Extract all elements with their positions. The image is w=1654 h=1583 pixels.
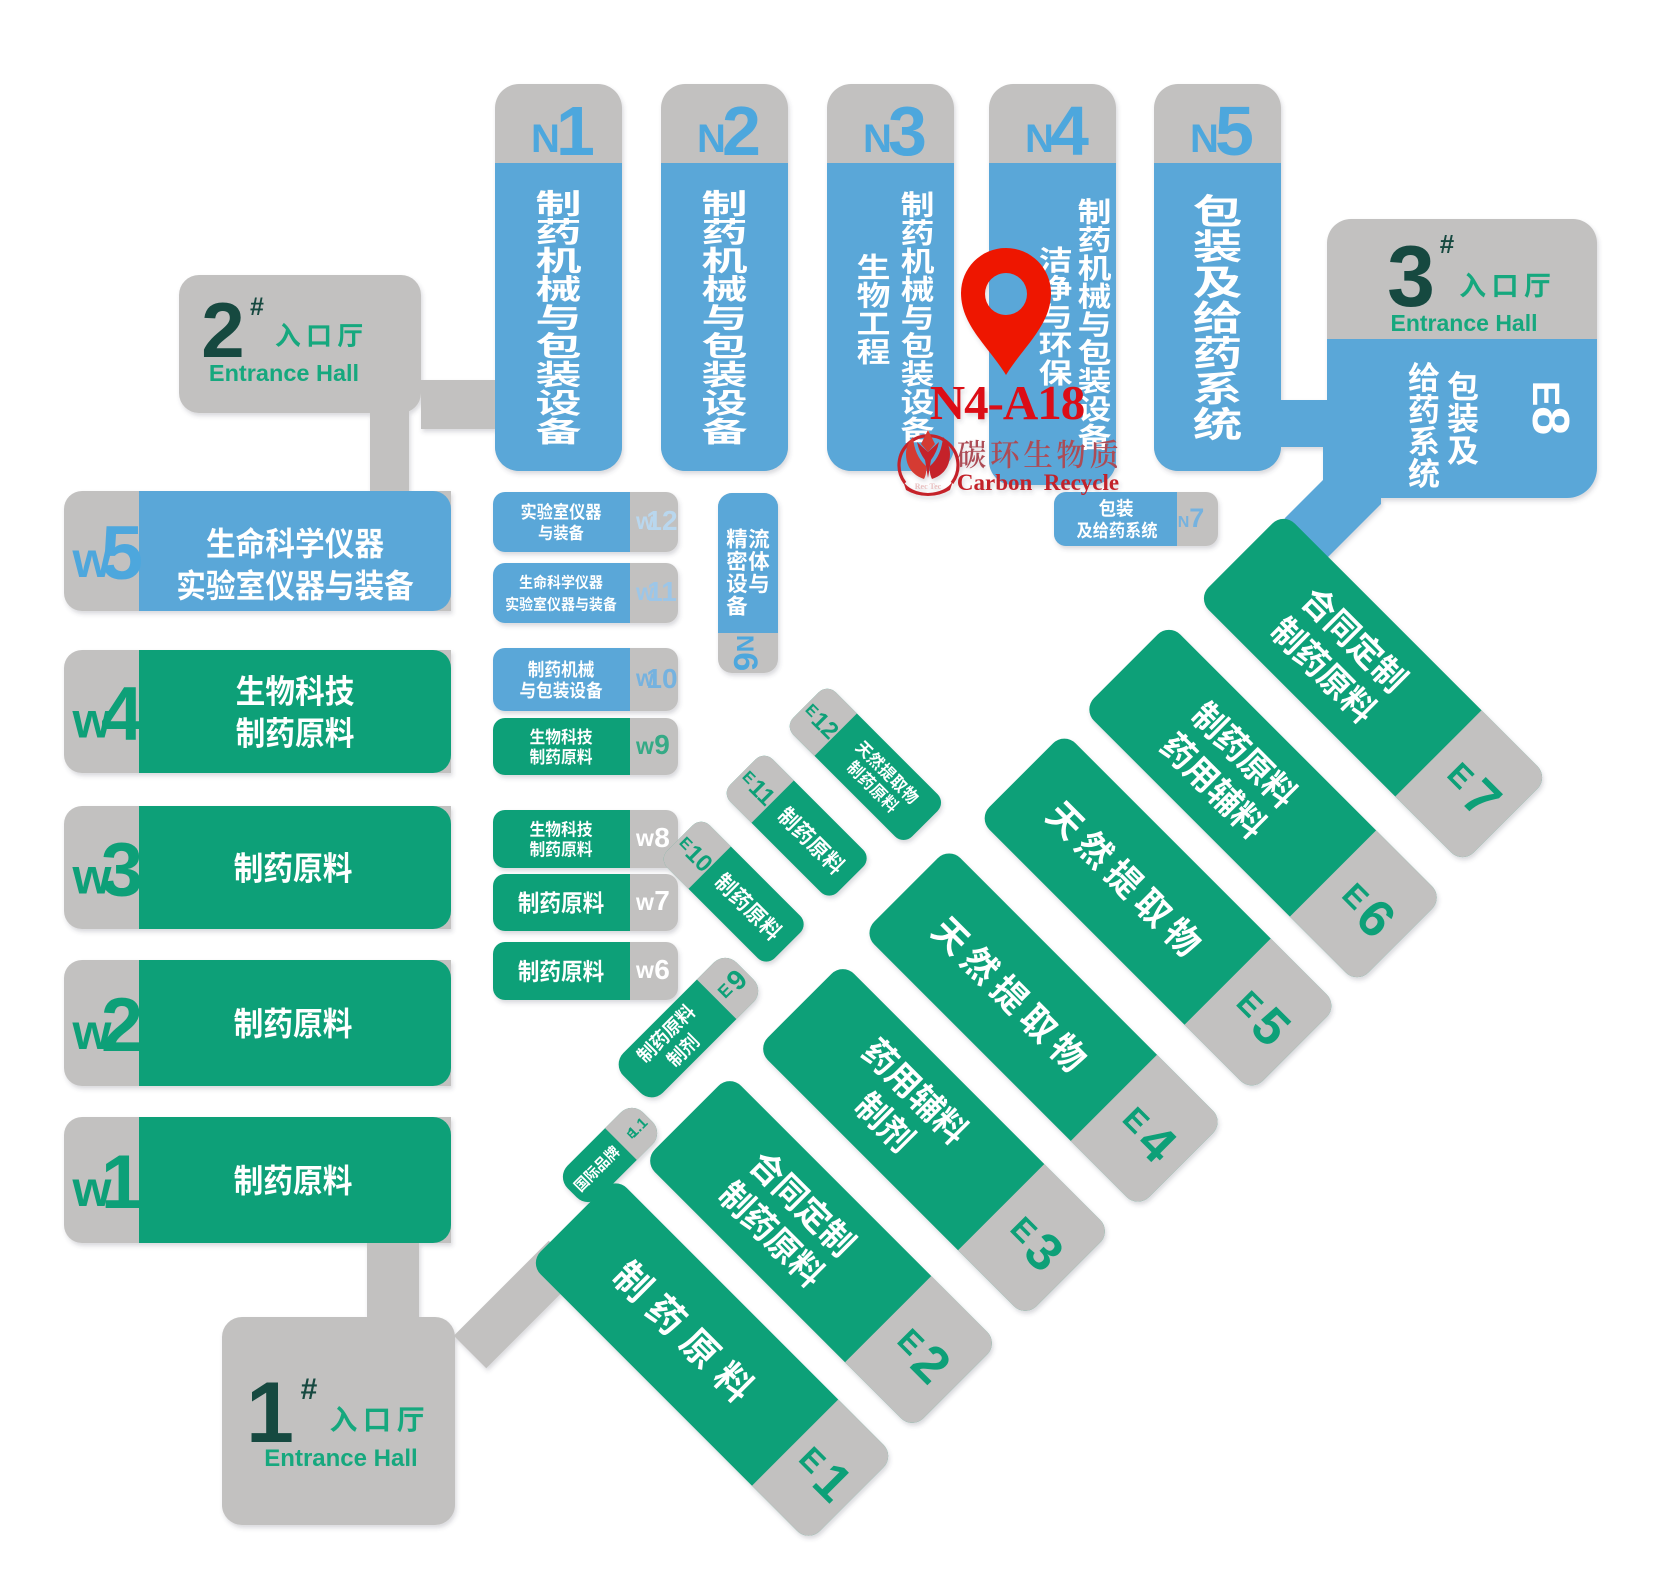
svg-text:3: 3 <box>888 92 927 170</box>
svg-text:w: w <box>635 889 654 915</box>
svg-text:#: # <box>301 1373 318 1406</box>
svg-text:Carbon Recycle: Carbon Recycle <box>957 470 1119 495</box>
svg-text:Entrance Hall: Entrance Hall <box>1391 310 1538 336</box>
svg-text:#: # <box>1440 229 1455 259</box>
svg-text:w: w <box>635 733 654 759</box>
svg-text:9: 9 <box>654 729 670 760</box>
svg-text:8: 8 <box>654 822 670 853</box>
svg-text:1: 1 <box>556 92 595 170</box>
svg-text:10: 10 <box>646 663 677 694</box>
svg-text:12: 12 <box>646 505 677 536</box>
svg-text:N6: N6 <box>726 635 764 671</box>
svg-text:w: w <box>635 957 654 983</box>
svg-text:4: 4 <box>1050 92 1089 170</box>
svg-text:Entrance Hall: Entrance Hall <box>209 360 359 386</box>
svg-text:4: 4 <box>101 672 143 757</box>
svg-text:5: 5 <box>1215 92 1254 170</box>
svg-text:3: 3 <box>101 828 143 913</box>
svg-text:2: 2 <box>722 92 761 170</box>
svg-text:7: 7 <box>654 885 670 916</box>
svg-text:Rec Tec: Rec Tec <box>915 482 942 491</box>
svg-text:w: w <box>635 825 654 851</box>
svg-text:#: # <box>250 293 264 321</box>
svg-text:6: 6 <box>654 954 670 985</box>
svg-text:N4-A18: N4-A18 <box>930 375 1085 430</box>
svg-text:Entrance Hall: Entrance Hall <box>264 1445 417 1472</box>
svg-text:1: 1 <box>101 1140 143 1225</box>
svg-text:11: 11 <box>647 576 677 607</box>
svg-text:5: 5 <box>101 511 143 596</box>
svg-text:2: 2 <box>101 983 143 1068</box>
